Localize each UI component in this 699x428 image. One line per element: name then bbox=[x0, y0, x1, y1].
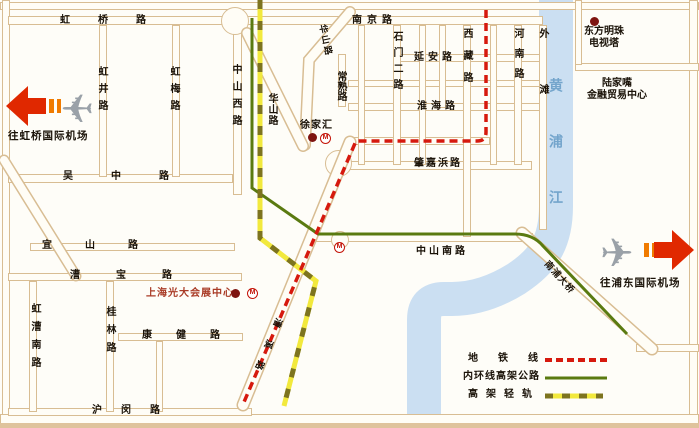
label-shimen-er-road: 石门二路 bbox=[391, 31, 401, 95]
label-hongqiao-road: 虹桥路 bbox=[60, 16, 174, 26]
label-xizang-road: 西藏路 bbox=[461, 28, 471, 94]
label-lujiazui-2: 金融贸易中心 bbox=[578, 91, 656, 101]
label-everbright-center: 上海光大会展中心 bbox=[146, 289, 234, 299]
label-nanpu-bridge: 南浦大桥 bbox=[543, 259, 576, 295]
road-pudong-h bbox=[575, 63, 699, 71]
metro-line bbox=[244, 10, 486, 402]
arrow-stripe bbox=[49, 99, 54, 113]
label-zhaojiabang-road: 肇嘉浜路 bbox=[414, 159, 462, 169]
hongqiao-airport-icon: ✈ bbox=[6, 80, 94, 137]
arrow-stripe bbox=[57, 99, 61, 113]
airplane-left-graphic: ✈ bbox=[6, 80, 94, 132]
label-zhongshan-west-road: 中山西路 bbox=[230, 64, 240, 132]
road-huashan2-edge bbox=[247, 33, 303, 146]
label-caoxi-road: 漕溪路 bbox=[248, 317, 283, 384]
road-frame-left bbox=[2, 0, 10, 428]
label-pearl-tower-1: 东方明珠 bbox=[578, 27, 630, 37]
left-arrow-icon bbox=[6, 86, 46, 126]
roundabout-xujiahui bbox=[325, 150, 352, 177]
airplane-icon: ✈ bbox=[60, 88, 94, 132]
shanghai-transit-map: 虹桥路 南京路 延安路 淮海路 肇嘉浜路 中山南路 吴中路 宜山路 漕宝路 康健… bbox=[0, 0, 699, 428]
everbright-dot bbox=[231, 289, 240, 298]
label-lujiazui-1: 陆家嘴 bbox=[578, 79, 656, 89]
pearl-tower-dot bbox=[590, 17, 599, 26]
road-filler-v3 bbox=[439, 25, 446, 108]
right-arrow-icon bbox=[654, 230, 694, 270]
arrow-stripe bbox=[644, 243, 649, 257]
everbright-metro-icon: M bbox=[247, 288, 258, 299]
label-huashan-road-diag: 华山路 bbox=[318, 24, 334, 58]
map-bottom-strip bbox=[0, 423, 699, 428]
airplane-icon: ✈ bbox=[600, 232, 634, 276]
xujiahui-dot bbox=[308, 133, 317, 142]
road-corner-se bbox=[636, 344, 699, 352]
label-huashan-road-vert: 华山路 bbox=[266, 93, 276, 126]
label-pearl-tower-2: 电视塔 bbox=[578, 39, 630, 49]
label-hongcao-south-road: 虹漕南路 bbox=[29, 303, 39, 375]
label-huangpu-river: 黄浦江 bbox=[549, 78, 563, 246]
label-yanan-road: 延安路 bbox=[414, 53, 456, 63]
label-yishan-road: 宜山路 bbox=[42, 241, 171, 251]
label-caobao-road: 漕宝路 bbox=[70, 271, 208, 281]
label-changshu-road: 常熟路 bbox=[335, 71, 345, 101]
label-wuzhong-road: 吴中路 bbox=[63, 172, 207, 182]
legend-ring-label: 内环线高架公路 bbox=[463, 372, 540, 382]
label-huaihai-road: 淮海路 bbox=[417, 102, 459, 112]
road-huashan2 bbox=[247, 33, 303, 146]
label-hongmei-road: 虹梅路 bbox=[168, 66, 178, 117]
label-kangjian-road: 康健路 bbox=[142, 331, 244, 341]
road-filler-v5 bbox=[156, 341, 163, 412]
xujiahui-metro-icon: M bbox=[320, 133, 331, 144]
label-guilin-road: 桂林路 bbox=[104, 306, 114, 360]
legend-lightrail-label: 高架轻轨 bbox=[468, 390, 540, 400]
station-metro-icon: M bbox=[334, 242, 345, 253]
road-filler-v2 bbox=[419, 25, 426, 165]
label-hongjing-road: 虹井路 bbox=[96, 66, 106, 117]
road-frame-top bbox=[0, 2, 699, 10]
roundabout-hongqiao bbox=[221, 7, 249, 35]
label-xujiahui: 徐家汇 bbox=[300, 121, 333, 131]
label-henan-road: 河南路 bbox=[512, 28, 522, 88]
pudong-airport-icon: ✈ bbox=[598, 224, 694, 281]
airplane-right-graphic: ✈ bbox=[598, 224, 694, 276]
label-waitan-road: 外滩 bbox=[537, 28, 547, 140]
label-nanjing-road: 南京路 bbox=[352, 16, 397, 26]
road-filler-v1 bbox=[358, 25, 365, 165]
legend-samples bbox=[545, 360, 608, 396]
label-zhongshan-south-road: 中山南路 bbox=[416, 247, 468, 257]
road-filler-v4 bbox=[490, 25, 497, 165]
label-humin-road: 沪闵路 bbox=[92, 406, 179, 416]
legend-metro-label: 地铁线 bbox=[468, 354, 558, 364]
